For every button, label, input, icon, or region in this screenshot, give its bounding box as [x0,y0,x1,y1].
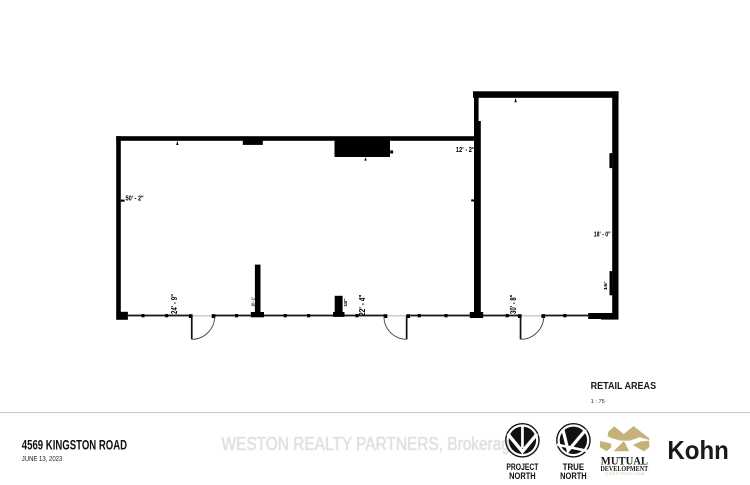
svg-text:12' - 2": 12' - 2" [456,145,475,154]
svg-text:1 : 75: 1 : 75 [591,399,605,405]
svg-text:JUNE 13, 2023: JUNE 13, 2023 [22,454,63,463]
svg-text:C O N S T R U C T I O N: C O N S T R U C T I O N [605,472,644,476]
svg-text:Kohn: Kohn [667,435,729,465]
svg-text:18": 18" [343,298,348,307]
svg-text:WESTON REALTY PARTNERS, Broker: WESTON REALTY PARTNERS, Brokerage [222,434,519,454]
svg-text:24' - 9": 24' - 9" [170,294,179,314]
svg-text:4569 KINGSTON ROAD: 4569 KINGSTON ROAD [22,437,127,453]
svg-text:RETAIL AREAS: RETAIL AREAS [591,381,657,392]
svg-text:NORTH: NORTH [560,470,587,481]
svg-text:50' - 2": 50' - 2" [126,193,144,202]
svg-text:22' - 4": 22' - 4" [358,294,367,316]
svg-text:30' - 8": 30' - 8" [509,294,518,314]
svg-text:16': 16' [603,281,608,290]
svg-text:18' - 0": 18' - 0" [594,230,611,239]
svg-text:19' - 1": 19' - 1" [250,297,255,307]
svg-text:NORTH: NORTH [509,470,536,481]
